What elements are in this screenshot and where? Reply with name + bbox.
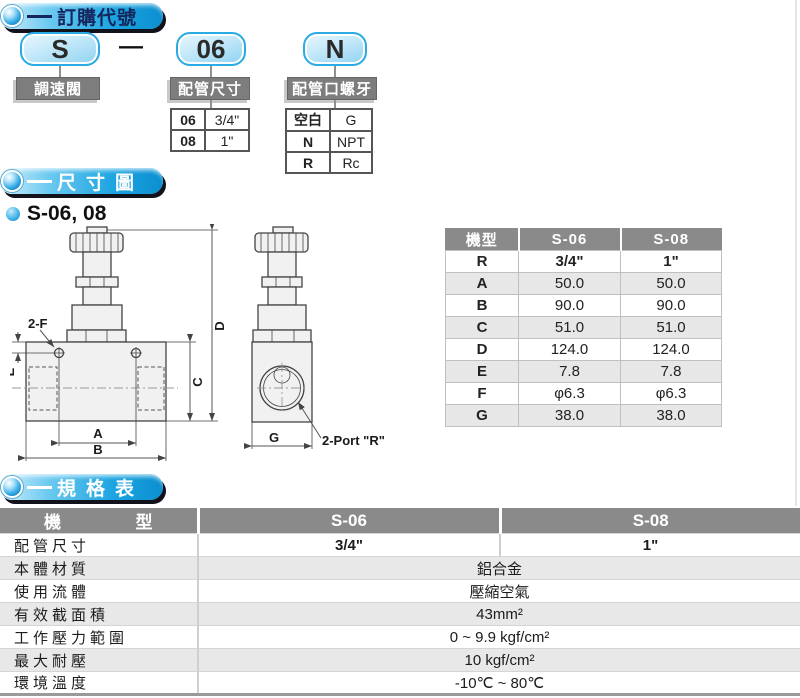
dim-value: 51.0	[519, 317, 621, 339]
option-code: N	[286, 131, 330, 152]
col-header-s08: S-08	[621, 229, 722, 251]
spec-label: 有效截面積	[0, 603, 198, 626]
dim-value: 51.0	[621, 317, 722, 339]
connector-line	[210, 66, 212, 77]
page-edge-divider	[795, 0, 797, 506]
dim-value: 50.0	[621, 273, 722, 295]
dim-name: D	[446, 339, 519, 361]
dim-value: 7.8	[519, 361, 621, 383]
dim-value: 38.0	[621, 405, 722, 427]
dim-name: F	[446, 383, 519, 405]
connector-line	[334, 100, 336, 108]
spec-label: 最大耐壓	[0, 649, 198, 672]
dim-value: 7.8	[621, 361, 722, 383]
dimension-label-b: B	[93, 442, 102, 457]
code-size-text: 06	[197, 34, 226, 65]
spec-value-s08: 1"	[500, 534, 800, 557]
sphere-icon	[1, 5, 23, 27]
dimension-label-d: D	[212, 321, 227, 330]
dim-value: 90.0	[621, 295, 722, 317]
col-header-model: 機型	[446, 229, 519, 251]
option-code: 08	[171, 130, 205, 151]
code-box-size: 06	[176, 32, 246, 66]
spec-label: 環境溫度	[0, 672, 198, 695]
dim-name: B	[446, 295, 519, 317]
dimension-label-a: A	[93, 426, 103, 441]
sphere-icon	[1, 476, 23, 498]
option-value: 1"	[205, 130, 249, 151]
spec-value: 43mm²	[198, 603, 800, 626]
option-value: NPT	[330, 131, 372, 152]
dim-value: 124.0	[621, 339, 722, 361]
table-row: 06 3/4"	[171, 109, 249, 130]
code-separator: —	[116, 33, 146, 61]
dim-value: 3/4"	[519, 251, 621, 273]
dot-icon	[6, 207, 20, 221]
spec-section-title: 規格表	[57, 474, 144, 501]
sphere-icon	[1, 170, 23, 192]
option-code: 空白	[286, 109, 330, 131]
code-box-model: S	[20, 32, 100, 66]
table-row: 環境溫度 -10℃ ~ 80℃	[0, 672, 800, 695]
spec-value-s06: 3/4"	[198, 534, 500, 557]
thread-option-table: 空白 G N NPT R Rc	[285, 108, 373, 174]
option-code: 06	[171, 109, 205, 130]
connector-line	[59, 66, 61, 77]
dimension-label-port: 2-Port "R"	[322, 433, 385, 448]
spec-table: 機型 S-06 S-08 配管尺寸 3/4" 1" 本體材質 鋁合金 使用流體 …	[0, 508, 800, 696]
spec-value: 0 ~ 9.9 kgf/cm²	[198, 626, 800, 649]
option-value: 3/4"	[205, 109, 249, 130]
spec-label: 本體材質	[0, 557, 198, 580]
dim-value: 90.0	[519, 295, 621, 317]
col-header-model: 機型	[0, 508, 198, 534]
table-header-row: 機型 S-06 S-08	[446, 229, 722, 251]
table-row: B 90.0 90.0	[446, 295, 722, 317]
dim-name: A	[446, 273, 519, 295]
spec-value: 壓縮空氣	[198, 580, 800, 603]
option-value: G	[330, 109, 372, 131]
spec-label: 配管尺寸	[0, 534, 198, 557]
pipe-size-option-table: 06 3/4" 08 1"	[170, 108, 250, 152]
col-header-s06: S-06	[198, 508, 500, 534]
col-header-s06: S-06	[519, 229, 621, 251]
option-code: R	[286, 152, 330, 173]
table-row: E 7.8 7.8	[446, 361, 722, 383]
valve-side-view	[252, 227, 312, 422]
table-row: 空白 G	[286, 109, 372, 131]
dimension-table: 機型 S-06 S-08 R 3/4" 1" A 50.0 50.0 B 90.…	[445, 228, 722, 427]
table-row: 工作壓力範圍 0 ~ 9.9 kgf/cm²	[0, 626, 800, 649]
table-row: R Rc	[286, 152, 372, 173]
dimension-section-title: 尺寸圖	[57, 168, 144, 195]
dimension-label-c: C	[190, 377, 205, 387]
code-label-thread: 配管口螺牙	[287, 77, 377, 100]
dimension-label-e: E	[10, 367, 17, 376]
table-row: C 51.0 51.0	[446, 317, 722, 339]
code-label-pipe-size: 配管尺寸	[170, 77, 250, 100]
table-row: 使用流體 壓縮空氣	[0, 580, 800, 603]
option-value: Rc	[330, 152, 372, 173]
dim-name: R	[446, 251, 519, 273]
dimension-section-header: 尺寸圖	[0, 168, 163, 194]
table-header-row: 機型 S-06 S-08	[0, 508, 800, 534]
table-row: D 124.0 124.0	[446, 339, 722, 361]
table-row: N NPT	[286, 131, 372, 152]
table-row: R 3/4" 1"	[446, 251, 722, 273]
spec-label: 使用流體	[0, 580, 198, 603]
table-row: F φ6.3 φ6.3	[446, 383, 722, 405]
dim-value: 50.0	[519, 273, 621, 295]
dim-value: 38.0	[519, 405, 621, 427]
table-row: 08 1"	[171, 130, 249, 151]
table-row: A 50.0 50.0	[446, 273, 722, 295]
table-row: 本體材質 鋁合金	[0, 557, 800, 580]
dimension-label-g: G	[269, 430, 279, 445]
ordering-section-title: 訂購代號	[57, 3, 137, 30]
table-row: G 38.0 38.0	[446, 405, 722, 427]
dim-value: φ6.3	[621, 383, 722, 405]
connector-line	[334, 66, 336, 77]
valve-dimension-drawing: 2-F E C D A B	[10, 224, 440, 466]
model-label-line: S-06, 08	[6, 202, 106, 226]
code-box-thread: N	[303, 32, 367, 66]
spec-section-header: 規格表	[0, 474, 163, 500]
spec-value: 鋁合金	[198, 557, 800, 580]
model-label: S-06, 08	[27, 202, 106, 226]
spec-value: 10 kgf/cm²	[198, 649, 800, 672]
table-row: 有效截面積 43mm²	[0, 603, 800, 626]
code-label-valve: 調速閥	[16, 77, 100, 100]
dim-name: C	[446, 317, 519, 339]
dim-name: G	[446, 405, 519, 427]
dim-value: 1"	[621, 251, 722, 273]
col-header-s08: S-08	[500, 508, 800, 534]
catalog-page: 訂購代號 S — 06 N 調速閥 配管尺寸 配管口螺牙 06 3/4" 08 …	[0, 0, 800, 698]
spec-value: -10℃ ~ 80℃	[198, 672, 800, 695]
table-row: 配管尺寸 3/4" 1"	[0, 534, 800, 557]
code-thread-text: N	[326, 34, 345, 65]
dim-name: E	[446, 361, 519, 383]
table-row: 最大耐壓 10 kgf/cm²	[0, 649, 800, 672]
dim-value: 124.0	[519, 339, 621, 361]
header-dash-icon	[27, 180, 52, 183]
spec-label: 工作壓力範圍	[0, 626, 198, 649]
header-dash-icon	[27, 486, 52, 489]
ordering-section-header: 訂購代號	[0, 3, 163, 29]
header-dash-icon	[27, 15, 52, 18]
dimension-label-2f: 2-F	[28, 316, 48, 331]
connector-line	[210, 100, 212, 108]
dim-value: φ6.3	[519, 383, 621, 405]
code-model-text: S	[51, 34, 68, 65]
